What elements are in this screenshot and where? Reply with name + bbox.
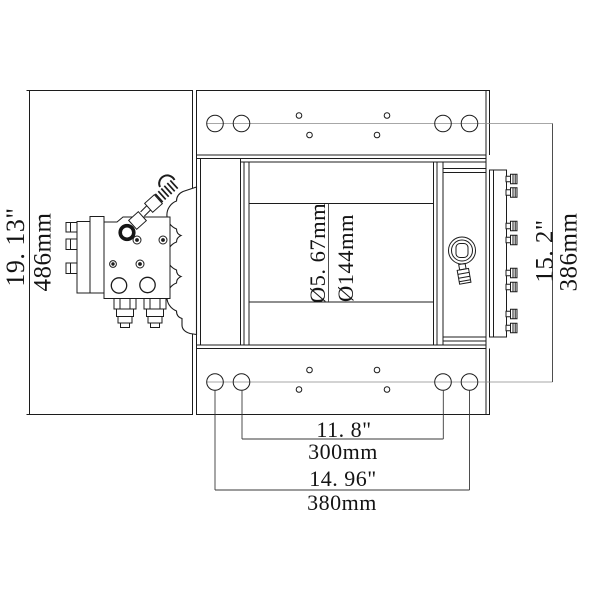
hydraulic-motor (66, 217, 104, 294)
dim-mount-vertical-mm: 386mm (557, 213, 582, 292)
housing-bolts (506, 174, 517, 333)
dim-drum-diameter-mm: Ø144mm (335, 214, 358, 302)
dim-outer-span-inches: 14. 96" (309, 468, 376, 490)
hydraulic-fittings (114, 299, 166, 328)
dim-overall-height-mm: 486mm (31, 213, 56, 292)
dim-mount-vertical-inches: 15. 2" (533, 219, 558, 282)
dimension-lines (215, 124, 553, 491)
dim-outer-span-mm: 380mm (307, 492, 377, 514)
dim-drum-diameter-inches: Ø5. 67mm (307, 203, 330, 303)
dim-overall-height-inches: 19. 13" (3, 207, 29, 286)
clutch-knob (449, 237, 476, 284)
drum-flange-ring (167, 187, 197, 335)
winch-dimension-drawing: 19. 13" 486mm Ø5. 67mm Ø144mm 15. 2" 386… (0, 0, 600, 600)
top-mounting-plate-holes (207, 113, 478, 138)
dim-inner-span-inches: 11. 8" (316, 419, 371, 441)
bottom-mounting-plate-holes (207, 367, 478, 392)
dim-inner-span-mm: 300mm (308, 441, 378, 463)
winch-line-art (0, 0, 600, 600)
